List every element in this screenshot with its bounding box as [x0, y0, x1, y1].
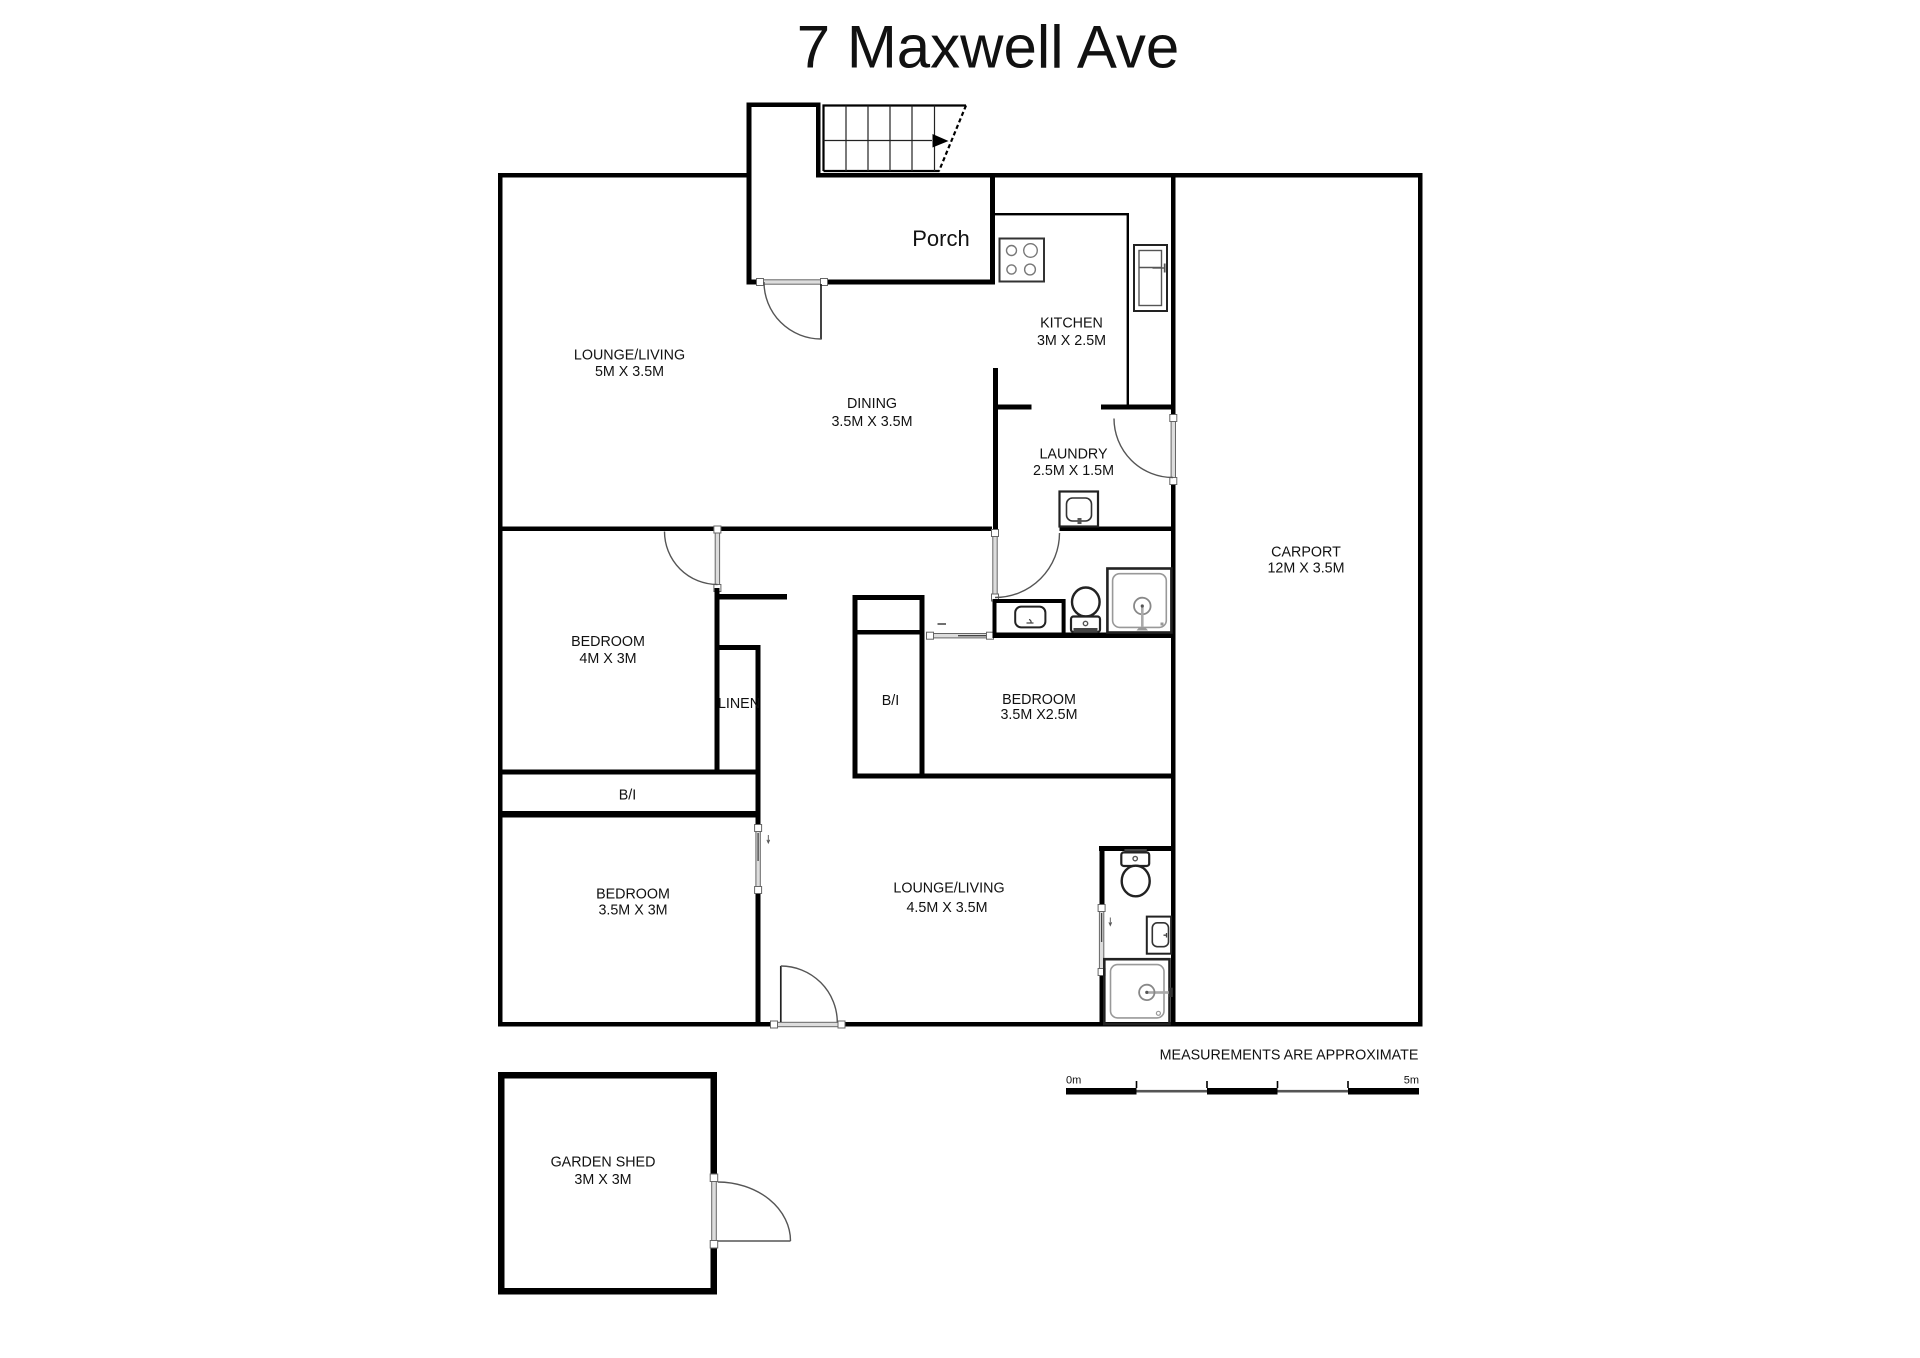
svg-text:3.5M X 3M: 3.5M X 3M	[598, 903, 667, 919]
svg-text:7 Maxwell Ave: 7 Maxwell Ave	[797, 14, 1179, 81]
svg-text:3M X 3M: 3M X 3M	[574, 1172, 631, 1188]
svg-text:GARDEN SHED: GARDEN SHED	[551, 1155, 656, 1171]
svg-text:2.5M X 1.5M: 2.5M X 1.5M	[1033, 463, 1114, 479]
svg-text:KITCHEN: KITCHEN	[1040, 316, 1103, 332]
svg-text:B/I: B/I	[882, 693, 899, 709]
svg-text:LAUNDRY: LAUNDRY	[1039, 447, 1108, 463]
svg-text:3M X 2.5M: 3M X 2.5M	[1037, 333, 1106, 349]
svg-text:CARPORT: CARPORT	[1271, 545, 1341, 561]
svg-text:MEASUREMENTS ARE APPROXIMATE: MEASUREMENTS ARE APPROXIMATE	[1160, 1048, 1419, 1064]
svg-text:Porch: Porch	[912, 226, 969, 251]
svg-text:5M X 3.5M: 5M X 3.5M	[595, 364, 664, 380]
svg-text:3.5M X 3.5M: 3.5M X 3.5M	[831, 414, 912, 430]
svg-text:5m: 5m	[1404, 1075, 1419, 1087]
svg-text:LOUNGE/LIVING: LOUNGE/LIVING	[893, 881, 1004, 897]
svg-text:B/I: B/I	[619, 788, 636, 804]
svg-text:LOUNGE/LIVING: LOUNGE/LIVING	[574, 348, 685, 364]
svg-text:DINING: DINING	[847, 396, 897, 412]
svg-text:4M X 3M: 4M X 3M	[579, 651, 636, 667]
svg-text:BEDROOM: BEDROOM	[1002, 692, 1076, 708]
svg-text:0m: 0m	[1066, 1075, 1081, 1087]
svg-text:4.5M X 3.5M: 4.5M X 3.5M	[906, 900, 987, 916]
svg-text:BEDROOM: BEDROOM	[596, 887, 670, 903]
svg-text:12M X 3.5M: 12M X 3.5M	[1267, 561, 1344, 577]
svg-text:LINEN: LINEN	[718, 696, 760, 712]
svg-text:BEDROOM: BEDROOM	[571, 634, 645, 650]
svg-text:3.5M X2.5M: 3.5M X2.5M	[1000, 707, 1077, 723]
